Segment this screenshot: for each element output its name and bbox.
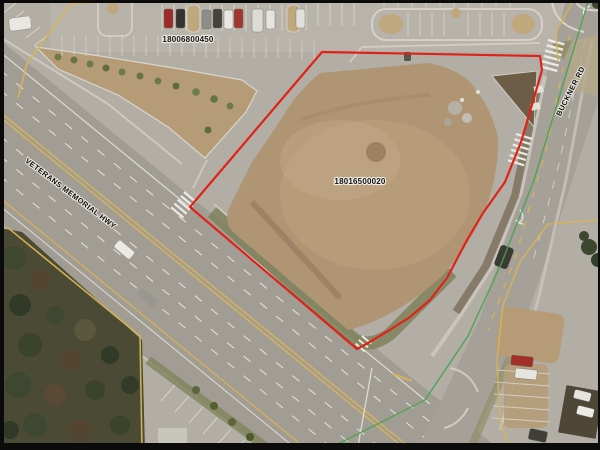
parcel-label-18016500020: 18016500020: [334, 177, 385, 186]
stall-island: [187, 5, 200, 32]
car-top-left: [8, 16, 32, 32]
parcel-label-18006800450: 18006800450: [162, 35, 213, 44]
aerial-photo: 18006800450 18016500020 VETERANS MEMORIA…: [0, 0, 600, 450]
dirt-island: [495, 306, 565, 364]
aerial-map-canvas[interactable]: 18006800450 18016500020 VETERANS MEMORIA…: [0, 0, 600, 450]
